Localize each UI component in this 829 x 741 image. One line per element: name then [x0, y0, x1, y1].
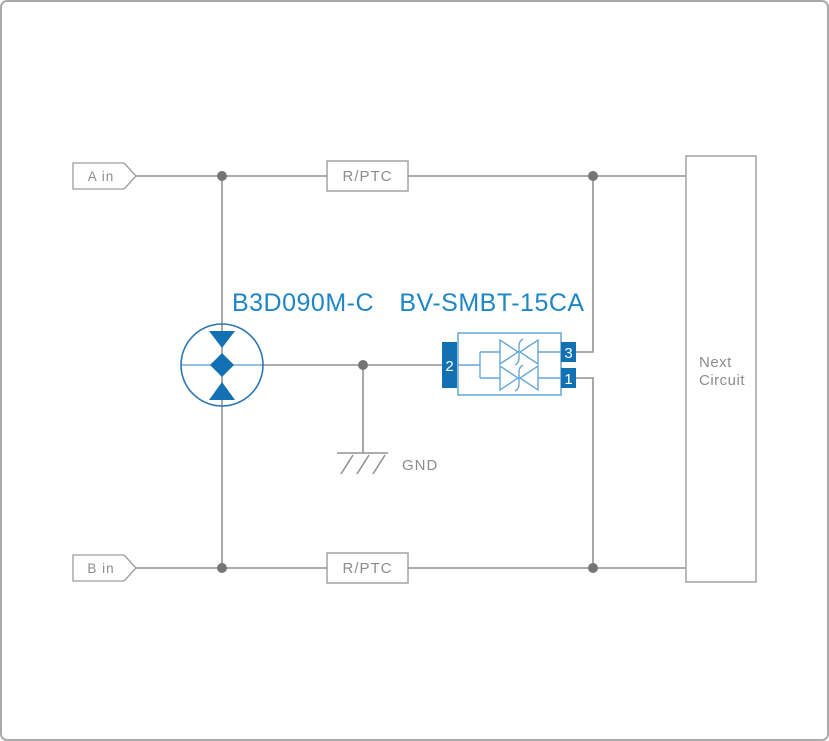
gnd-label: GND	[402, 457, 438, 474]
rptc-resistor-a: R/PTC	[327, 161, 408, 191]
junction-dot	[358, 360, 368, 370]
next-circuit-label-1: Next	[699, 354, 732, 371]
tvs-pin2-label: 2	[445, 358, 453, 375]
tvs-pin1-label: 1	[564, 371, 572, 388]
terminal-b-label: B in	[87, 561, 114, 576]
tvs-pin3-label: 3	[564, 345, 572, 362]
tvs-part-label: BV-SMBT-15CA	[399, 289, 584, 317]
junction-dot	[588, 171, 598, 181]
gdt-symbol	[181, 324, 263, 406]
schematic-canvas: GND A in B in R/PTC R/PTC Next Circuit B…	[0, 0, 829, 741]
rptc-resistor-b: R/PTC	[327, 553, 408, 583]
rptc-a-label: R/PTC	[343, 168, 393, 185]
junction-dot	[217, 563, 227, 573]
rptc-b-label: R/PTC	[343, 560, 393, 577]
terminal-a: A in	[73, 163, 136, 189]
circuit-schematic: GND A in B in R/PTC R/PTC Next Circuit B…	[0, 0, 829, 741]
junction-dot	[217, 171, 227, 181]
next-circuit-block: Next Circuit	[686, 156, 756, 582]
tvs-body	[458, 333, 561, 395]
junction-dot	[588, 563, 598, 573]
next-circuit-label-2: Circuit	[699, 372, 745, 389]
tvs-symbol: 2 3 1	[442, 333, 576, 395]
terminal-a-label: A in	[88, 169, 115, 184]
terminal-b: B in	[73, 555, 136, 581]
gdt-part-label: B3D090M-C	[232, 289, 374, 317]
